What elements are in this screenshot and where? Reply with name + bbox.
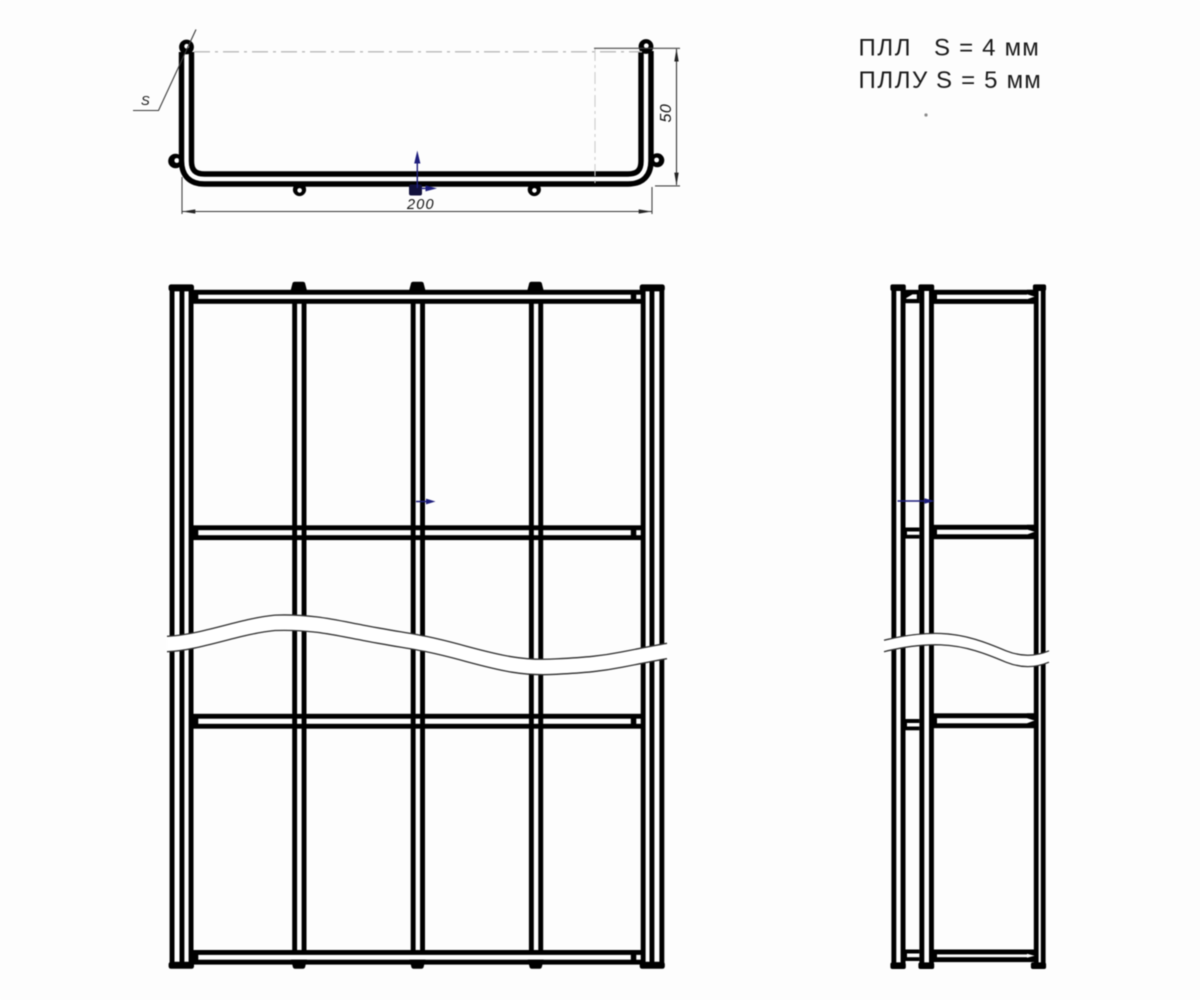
svg-text:50: 50	[658, 104, 675, 123]
svg-text:S: S	[141, 93, 150, 108]
svg-text:S = 4 мм: S = 4 мм	[934, 35, 1040, 62]
svg-text:S = 5 мм: S = 5 мм	[936, 67, 1042, 94]
svg-text:ПЛЛУ: ПЛЛУ	[859, 67, 929, 94]
svg-text:200: 200	[406, 197, 435, 213]
svg-text:ПЛЛ: ПЛЛ	[859, 35, 913, 62]
